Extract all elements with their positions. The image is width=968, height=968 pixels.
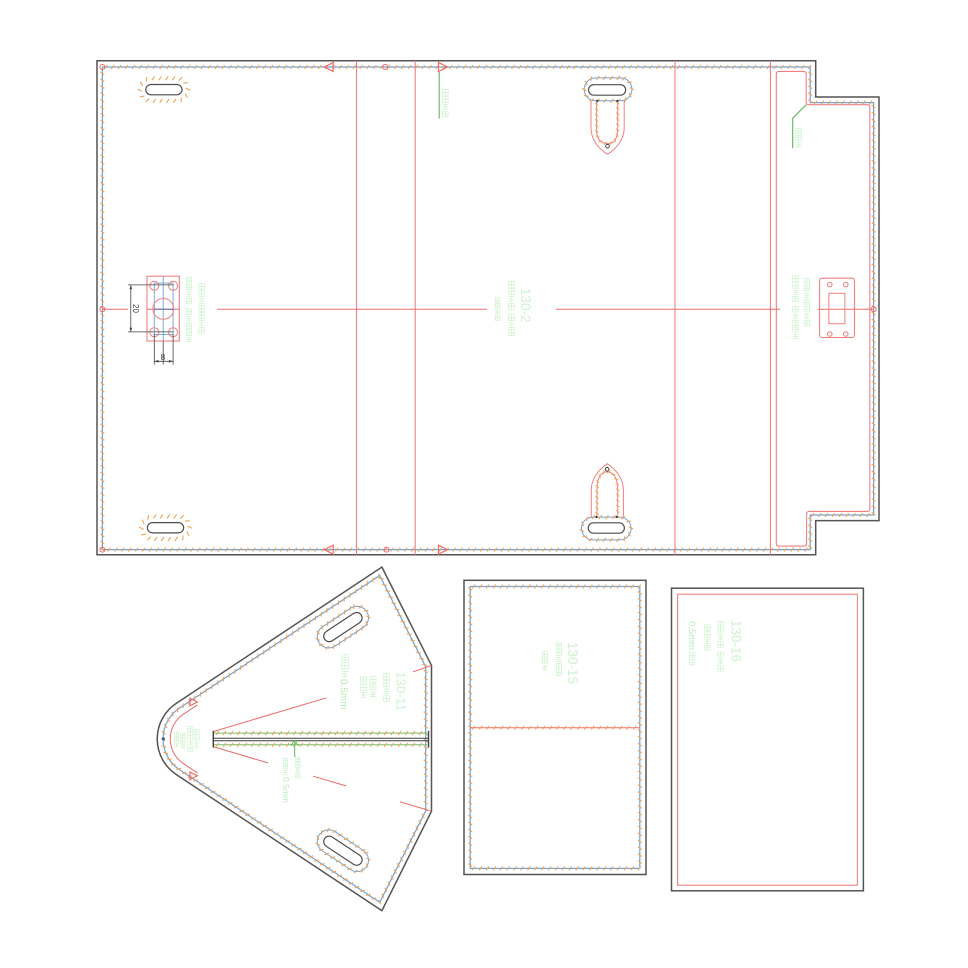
svg-text:0.5mm: 0.5mm (281, 777, 291, 803)
svg-text:0.5mm: 0.5mm (686, 621, 697, 650)
svg-text:130-16: 130-16 (729, 620, 744, 662)
svg-text:0.5mm: 0.5mm (338, 679, 349, 710)
svg-text:130-11: 130-11 (394, 672, 409, 712)
svg-text:20: 20 (131, 304, 140, 313)
svg-text:130-15: 130-15 (565, 642, 580, 684)
svg-text:8: 8 (161, 352, 166, 362)
svg-text:130-2: 130-2 (518, 288, 533, 323)
